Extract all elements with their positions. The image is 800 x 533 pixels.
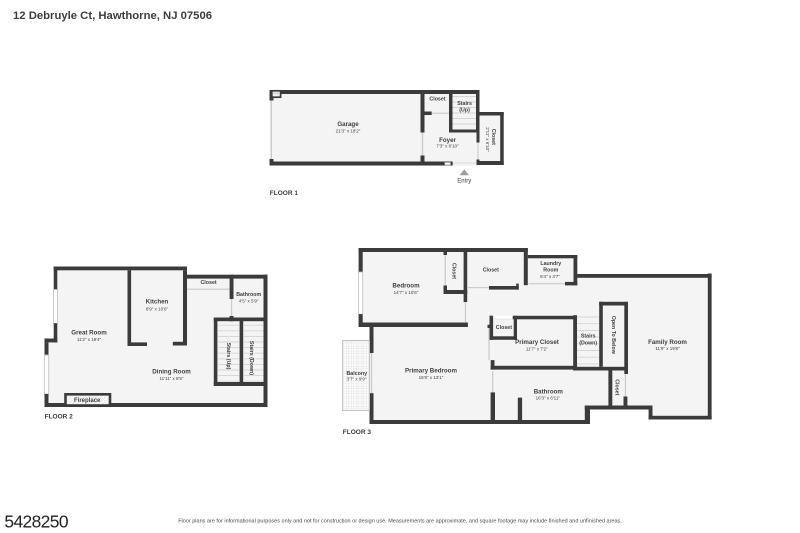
svg-text:2'11" x 6'10": 2'11" x 6'10" <box>485 127 490 152</box>
svg-text:Stairs: Stairs <box>457 101 472 107</box>
svg-text:14'7" x 10'6": 14'7" x 10'6" <box>394 290 419 295</box>
svg-text:21'3" x 18'2": 21'3" x 18'2" <box>336 128 361 133</box>
svg-text:Closet: Closet <box>429 97 445 103</box>
svg-text:Laundry: Laundry <box>540 261 561 267</box>
svg-text:5428250: 5428250 <box>4 512 68 532</box>
svg-text:Stairs (Down): Stairs (Down) <box>248 341 254 375</box>
svg-text:Closet: Closet <box>450 263 456 279</box>
svg-text:7'3" x 6'10": 7'3" x 6'10" <box>436 143 459 148</box>
svg-text:Room: Room <box>543 268 558 274</box>
svg-text:3'7" x 9'9": 3'7" x 9'9" <box>347 376 367 381</box>
svg-text:Open To Below: Open To Below <box>610 316 616 355</box>
svg-text:Entry: Entry <box>457 179 471 185</box>
svg-text:(Down): (Down) <box>579 340 597 346</box>
svg-text:16'8" x 13'1": 16'8" x 13'1" <box>419 375 444 380</box>
svg-text:Closet: Closet <box>200 280 216 286</box>
svg-text:11'9" x 19'8": 11'9" x 19'8" <box>655 346 680 351</box>
svg-text:FLOOR 3: FLOOR 3 <box>343 429 372 436</box>
svg-text:Dining Room: Dining Room <box>152 368 191 375</box>
svg-text:6'4" x 3'7": 6'4" x 3'7" <box>540 274 560 279</box>
svg-text:Great Room: Great Room <box>71 329 107 336</box>
svg-text:Fireplace: Fireplace <box>74 398 101 404</box>
svg-text:16'3" x 6'11": 16'3" x 6'11" <box>536 395 561 400</box>
svg-text:12 Debruyle Ct, Hawthorne, NJ: 12 Debruyle Ct, Hawthorne, NJ 07506 <box>13 10 212 22</box>
svg-text:Bathroom: Bathroom <box>236 292 261 298</box>
svg-text:8'9" x 10'6": 8'9" x 10'6" <box>146 306 169 311</box>
svg-text:FLOOR 2: FLOOR 2 <box>45 414 74 421</box>
svg-text:Stairs: Stairs <box>581 333 596 339</box>
svg-text:Floor plans are for informatio: Floor plans are for informational purpos… <box>178 519 622 525</box>
svg-text:Garage: Garage <box>337 121 359 128</box>
svg-text:Bedroom: Bedroom <box>392 283 420 290</box>
svg-text:(Up): (Up) <box>459 107 470 113</box>
svg-text:Primary Bedroom: Primary Bedroom <box>405 368 457 375</box>
svg-text:Stairs (Up): Stairs (Up) <box>225 343 231 370</box>
svg-text:Primary Closet: Primary Closet <box>515 339 559 346</box>
svg-text:Kitchen: Kitchen <box>146 299 169 306</box>
svg-text:11'2" x 19'4": 11'2" x 19'4" <box>77 337 102 342</box>
svg-text:Closet: Closet <box>496 325 512 331</box>
svg-text:11'11" x 8'5": 11'11" x 8'5" <box>159 376 183 381</box>
svg-text:Closet: Closet <box>483 268 499 274</box>
svg-text:FLOOR 1: FLOOR 1 <box>270 190 299 197</box>
svg-text:Bathroom: Bathroom <box>534 388 564 395</box>
svg-text:Family Room: Family Room <box>648 339 687 346</box>
svg-text:4'5" x 5'9": 4'5" x 5'9" <box>239 298 259 303</box>
svg-text:11'7" x 7'2": 11'7" x 7'2" <box>526 346 548 351</box>
svg-text:Closet: Closet <box>613 379 619 395</box>
